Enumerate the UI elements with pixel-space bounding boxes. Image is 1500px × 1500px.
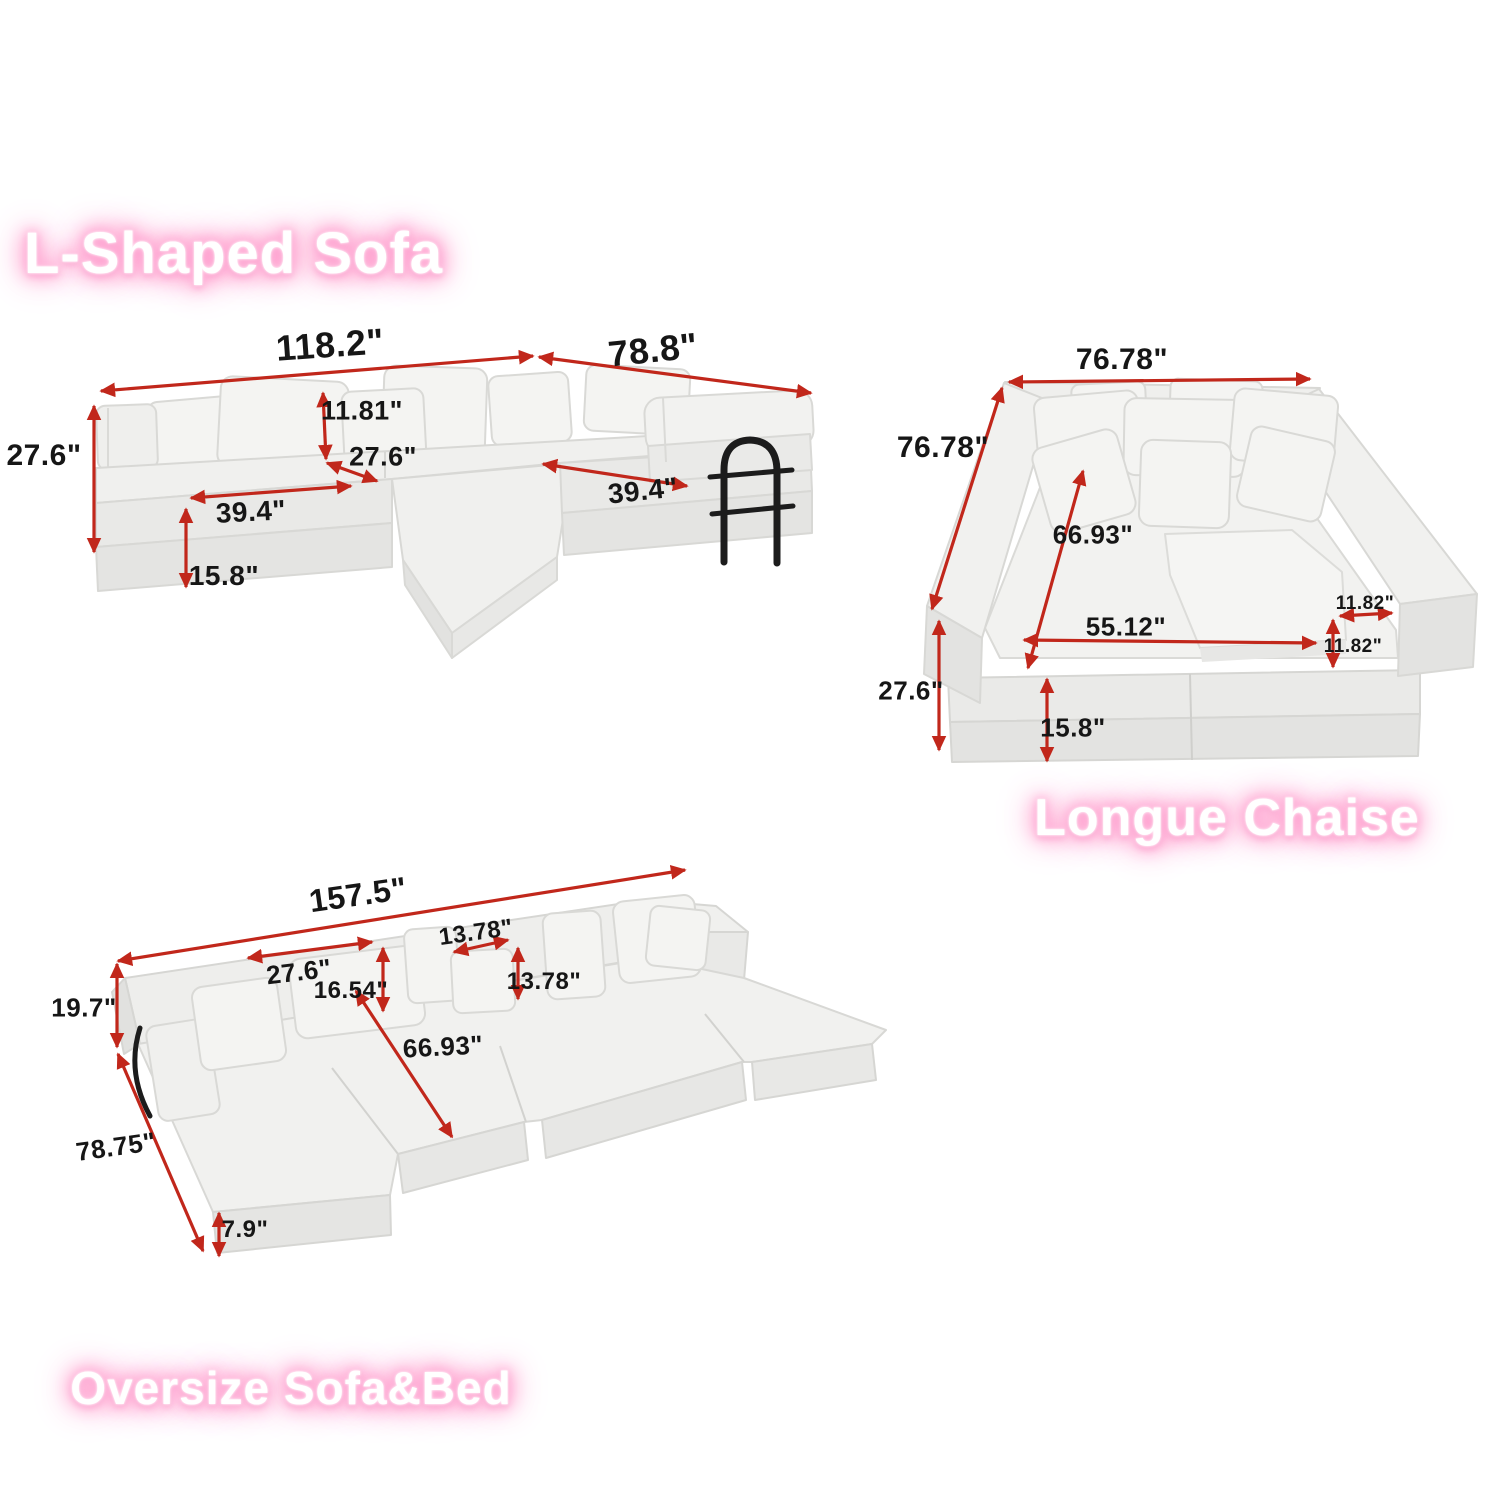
dim-c-arm-height: 11.82"	[1324, 636, 1383, 658]
dim-c-overall-height: 27.6"	[878, 676, 943, 707]
dim-c-base-height: 15.8"	[1040, 713, 1105, 744]
dim-b-back-cushion-height: 16.54"	[314, 977, 388, 1005]
dim-l-base-height: 15.8"	[189, 560, 259, 592]
dim-b-bed-length: 66.93"	[402, 1029, 484, 1064]
dim-b-back-height: 19.7"	[51, 993, 116, 1024]
dim-l-seat-width-left: 39.4"	[215, 494, 287, 530]
arrow-c-total-width	[1009, 379, 1310, 382]
dim-c-inner-width: 55.12"	[1086, 612, 1166, 643]
product-dimension-sheet: 118.2" 78.8" 27.6" 11.81" 27.6" 39.4" 15…	[0, 0, 1500, 1500]
dim-l-seat-depth: 27.6"	[349, 442, 417, 473]
dim-c-total-depth: 76.78"	[897, 431, 989, 465]
dim-l-overall-height: 27.6"	[6, 439, 81, 473]
dim-l-total-width: 118.2"	[275, 320, 386, 369]
arrow-c-inner-depth	[1028, 471, 1083, 668]
dim-c-total-width: 76.78"	[1076, 343, 1168, 377]
title-longue-chaise: Longue Chaise	[1034, 788, 1420, 848]
dim-c-arm-width: 11.82"	[1336, 593, 1395, 615]
arrow-c-total-depth	[932, 388, 1002, 609]
arrow-c-inner-width	[1024, 640, 1316, 643]
title-oversize-sofa-bed: Oversize Sofa&Bed	[70, 1361, 511, 1415]
dim-b-mattress-height: 7.9"	[222, 1216, 269, 1244]
title-l-shaped-sofa: L-Shaped Sofa	[24, 220, 443, 287]
dim-c-inner-depth: 66.93"	[1053, 520, 1133, 551]
dim-b-pillow-height: 13.78"	[507, 968, 581, 996]
dim-l-pillow-height: 11.81"	[321, 396, 403, 427]
